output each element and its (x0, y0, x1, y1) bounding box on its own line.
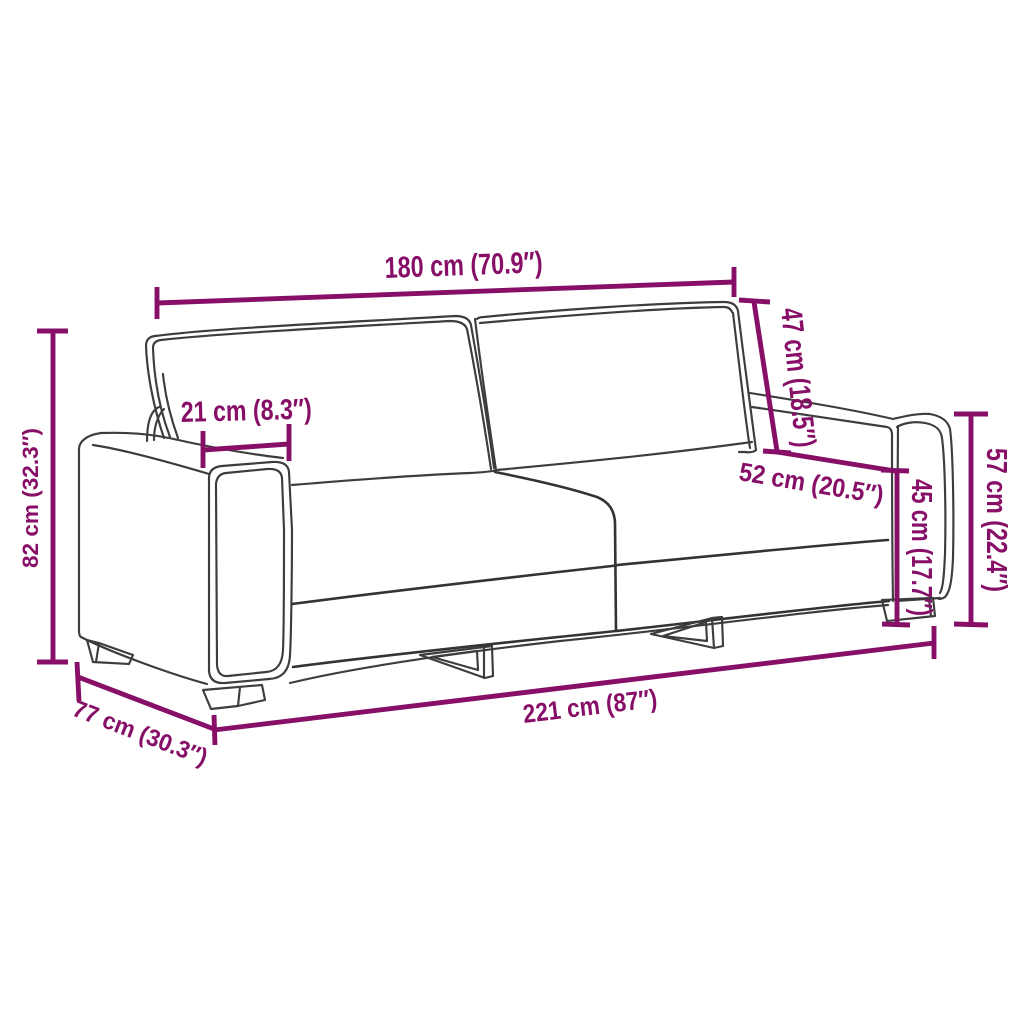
svg-text:21 cm (8.3″): 21 cm (8.3″) (180, 394, 312, 429)
svg-text:82 cm (32.3″): 82 cm (32.3″) (18, 428, 43, 568)
svg-text:180 cm (70.9″): 180 cm (70.9″) (384, 246, 543, 285)
svg-text:57 cm (22.4″): 57 cm (22.4″) (980, 448, 1012, 592)
svg-text:45 cm (17.7″): 45 cm (17.7″) (905, 479, 937, 616)
